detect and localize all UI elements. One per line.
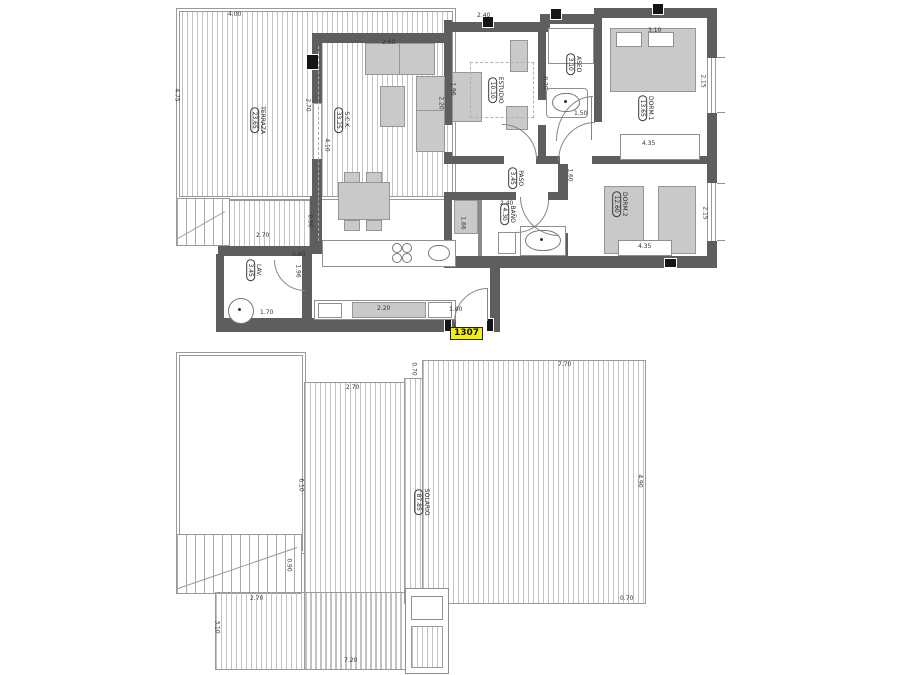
sofa [416, 110, 445, 152]
room-area: 23.65 [250, 108, 259, 133]
dimension-label: 7.20 [344, 658, 357, 664]
dimension-label: 1.40 [449, 307, 462, 313]
wall [312, 159, 322, 199]
kitchen-sink [428, 245, 450, 261]
wall [478, 200, 482, 256]
plan-number-badge: 1307 [450, 327, 483, 340]
washing-machine-door [238, 308, 241, 311]
dimension-label: 2.20 [438, 96, 444, 109]
dimension-label: 1.60 [567, 168, 573, 181]
sofa [365, 43, 401, 75]
chair [366, 220, 382, 231]
dimension-label: 3.10 [214, 620, 220, 633]
room-name: SOLARIO [423, 484, 430, 520]
floor-plan-canvas: TERRAZA 23.65 S.C.K. 33.25 ESTUDIO 10.10… [0, 0, 900, 675]
dimension-label: 2.70 [305, 98, 311, 111]
room-name: S.C.K. [343, 102, 350, 138]
wall [444, 156, 504, 164]
dim-tick [717, 183, 725, 184]
room-label-paso: PASO 3.45 [508, 160, 524, 196]
staircase-lower [176, 534, 302, 594]
dimension-label: 0.60 [292, 252, 305, 258]
chair [344, 220, 360, 231]
vent-marker [664, 258, 677, 268]
dimension-label: 2.60 [382, 40, 395, 46]
room-label-dorm1: DORM.1 13.65 [638, 90, 654, 126]
room-name: ASEO [575, 46, 582, 82]
door-arc-entrance [454, 288, 488, 322]
dimension-label: 1.96 [295, 264, 301, 277]
wardrobe [620, 134, 700, 160]
dimension-label: 4.10 [324, 138, 330, 151]
skylight-hatch [411, 626, 443, 668]
stair-corridor [228, 200, 312, 248]
washing-machine [228, 298, 254, 324]
dim-tick [717, 240, 725, 241]
room-name: LAV. [255, 252, 262, 288]
dimension-label: 4.75 [174, 88, 180, 101]
door-arc-estudio [502, 124, 537, 159]
room-name: DORM.2 [621, 186, 628, 222]
dim-tick [717, 112, 725, 113]
dimension-label: 0.70 [411, 362, 417, 375]
skylight-opening [411, 596, 443, 620]
solarium-main [422, 360, 646, 604]
dimension-label: 0.90 [307, 214, 313, 227]
room-area: 12.60 [612, 192, 621, 217]
dim-tick [717, 57, 725, 58]
dimension-label: 7.70 [558, 362, 571, 368]
dimension-label: 4.90 [637, 474, 643, 487]
dimension-label: 2.40 [477, 13, 490, 19]
dimension-label: 2.15 [700, 74, 706, 87]
dimension-label: 1.96 [450, 82, 456, 95]
toilet [498, 232, 516, 254]
pillow [616, 32, 642, 47]
drain [540, 238, 543, 241]
room-name: ESTUDIO [497, 72, 504, 108]
wall [216, 318, 456, 332]
dimension-label: 3.10 [648, 28, 661, 34]
dimension-label: 0.70 [620, 596, 633, 602]
room-name: PASO [517, 160, 524, 196]
room-area: 3.10 [566, 54, 575, 75]
wall [216, 254, 224, 322]
dimension-label: 4.35 [642, 141, 655, 147]
dimension-label: 0.70 [542, 76, 548, 89]
door-leaf [487, 288, 488, 321]
coffee-table [380, 86, 405, 127]
dimension-label: 2.70 [256, 233, 269, 239]
room-area: 3.45 [508, 168, 517, 189]
room-label-estudio: ESTUDIO 10.10 [488, 72, 504, 108]
vent-marker [652, 3, 664, 15]
cooktop-burner [402, 253, 412, 263]
roof-deck-open [176, 352, 306, 554]
wall [594, 18, 602, 122]
wall [444, 22, 546, 32]
kitchen-sink [318, 303, 342, 318]
wall [312, 43, 322, 103]
dimension-label: 2.15 [702, 206, 708, 219]
room-label-aseo: ASEO 3.10 [566, 46, 582, 82]
dimension-label: 6.10 [298, 478, 304, 491]
chair [366, 172, 382, 183]
window-dorm1 [707, 58, 717, 113]
dimension-label: 1.50 [574, 111, 587, 117]
reference-line [318, 46, 319, 241]
dimension-label: 0.90 [286, 558, 292, 571]
room-area: 3.45 [246, 260, 255, 281]
dimension-label: 4.35 [638, 244, 651, 250]
dimension-label: 2.40 [500, 201, 513, 207]
room-area: 10.10 [488, 78, 497, 103]
room-label-dorm2: DORM.2 12.60 [612, 186, 628, 222]
room-name: DORM.1 [647, 90, 654, 126]
pillow [648, 32, 674, 47]
room-label-lav: LAV. 3.45 [246, 252, 262, 288]
dimension-label: 4.00 [228, 12, 241, 18]
dimension-label: 1.66 [460, 216, 466, 229]
dimension-label: 2.20 [377, 306, 390, 312]
dining-table [338, 182, 390, 220]
vent-marker [550, 8, 562, 20]
room-label-terraza: TERRAZA 23.65 [250, 102, 266, 138]
faucet [564, 100, 567, 103]
wall [536, 156, 560, 164]
cooktop-burner [392, 243, 402, 253]
dimension-label: 1.70 [260, 310, 273, 316]
room-area: 33.25 [334, 108, 343, 133]
room-label-solario: SOLARIO 87.85 [414, 484, 430, 520]
wall [707, 8, 717, 58]
cooktop-burner [402, 243, 412, 253]
wall [707, 113, 717, 183]
solarium-bottom-terrace [215, 592, 407, 670]
dimension-label: 2.70 [250, 596, 263, 602]
cooktop-burner [392, 253, 402, 263]
chair [344, 172, 360, 183]
sofa [399, 43, 435, 75]
dimension-label: 2.70 [346, 385, 359, 391]
room-area: 87.85 [414, 490, 423, 515]
room-name: TERRAZA [259, 102, 266, 138]
room-area: 13.65 [638, 96, 647, 121]
room-label-sck: S.C.K. 33.25 [334, 102, 350, 138]
